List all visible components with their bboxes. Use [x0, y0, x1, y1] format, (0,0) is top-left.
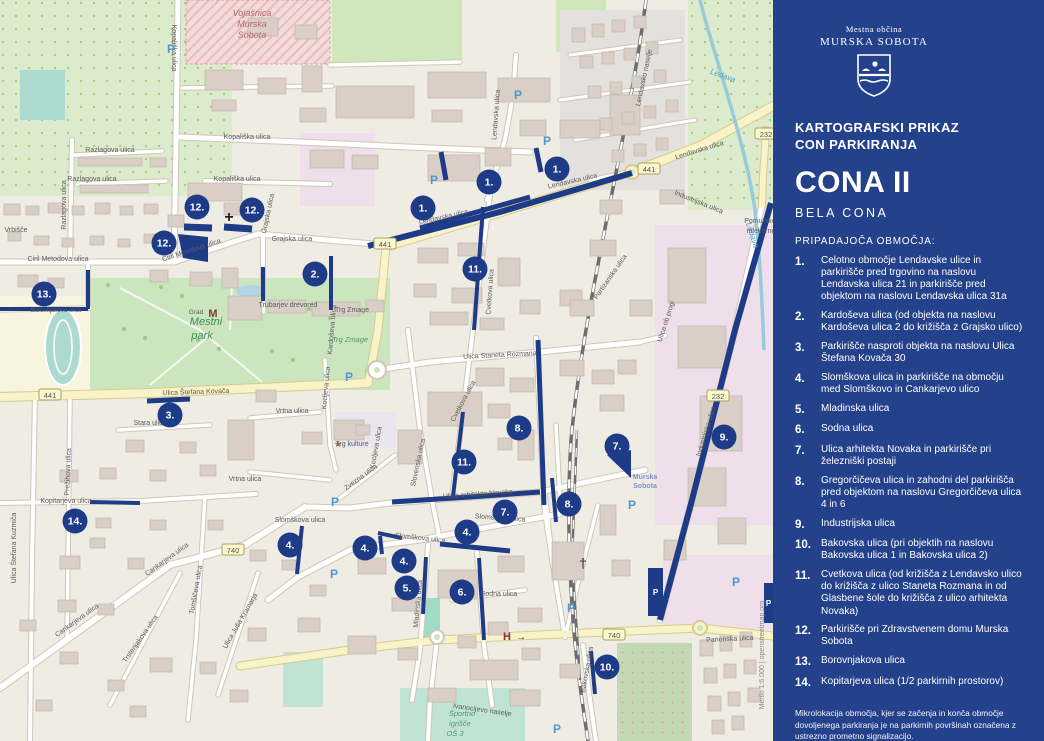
street-label: Slomškova ulica: [275, 517, 326, 524]
zone-marker-12: 12.: [185, 195, 210, 220]
svg-text:13.: 13.: [37, 289, 52, 301]
street-label: Razlagova ulica: [61, 180, 68, 230]
road-badge: 232: [707, 390, 729, 401]
area-list: 1.Celotno območje Lendavske ulice in par…: [795, 255, 1026, 696]
street-label: Kopitarjeva ulica: [40, 498, 91, 505]
zone-parkirisce-p: P: [648, 568, 663, 616]
parking-icon: P: [167, 42, 175, 56]
svg-text:14.: 14.: [68, 516, 83, 528]
svg-text:441: 441: [44, 391, 57, 400]
zone-marker-7: 7.: [605, 434, 630, 459]
zone-marker-11: 11.: [463, 257, 488, 282]
area-number: 7.: [795, 444, 816, 468]
street-label: Trg Zmage: [332, 335, 368, 344]
svg-text:1.: 1.: [485, 177, 494, 189]
zone-line-zdravstveni-a: [184, 227, 212, 228]
street-label: Mestni: [190, 316, 223, 328]
area-list-item: 12.Parkirišče pri Zdravstvenem domu Murs…: [795, 624, 1026, 648]
area-text: Cvetkova ulica (od križišča z Lendavsko …: [821, 569, 1026, 618]
zone-marker-14: 14.: [63, 509, 88, 534]
street-label: Vojašnica: [233, 8, 272, 18]
area-text: Kardoševa ulica (od objekta na naslovu K…: [821, 310, 1026, 334]
map-attribution: Merilo 1:6.000 | openstreetmap.org: [759, 600, 766, 709]
zone-marker-12: 12.: [240, 198, 265, 223]
street-label: Razlagova ulica: [85, 147, 135, 154]
svg-text:7.: 7.: [501, 507, 510, 519]
svg-text:6.: 6.: [458, 587, 467, 599]
area-list-heading: PRIPADAJOČA OBMOČJA:: [795, 236, 1026, 247]
svg-text:4.: 4.: [286, 540, 295, 552]
road-badge: 441: [638, 163, 660, 174]
area-list-item: 14.Kopitarjeva ulica (1/2 parkirnih pros…: [795, 676, 1026, 690]
area-text: Bakovska ulica (pri objektih na naslovu …: [821, 538, 1026, 562]
zone-marker-6: 6.: [450, 580, 475, 605]
area-list-item: 5.Mladinska ulica: [795, 403, 1026, 417]
zone-marker-4: 4.: [392, 549, 417, 574]
svg-text:441: 441: [643, 165, 656, 174]
street-label: mlekarne: [747, 228, 773, 235]
svg-text:11.: 11.: [468, 264, 482, 276]
area-list-item: 10.Bakovska ulica (pri objektih na naslo…: [795, 538, 1026, 562]
svg-text:4.: 4.: [463, 527, 472, 539]
svg-text:1.: 1.: [419, 203, 428, 215]
svg-text:232: 232: [712, 392, 725, 401]
area-number: 14.: [795, 676, 816, 690]
street-label: OŠ 3: [446, 729, 464, 738]
area-list-item: 4.Slomškova ulica in parkirišče na območ…: [795, 372, 1026, 396]
zone-marker-4: 4.: [278, 533, 303, 558]
svg-text:8.: 8.: [515, 423, 524, 435]
sheet-heading-line2: CON PARKIRANJA: [795, 137, 917, 152]
svg-text:4.: 4.: [400, 556, 409, 568]
parking-icon: P: [567, 601, 575, 615]
area-list-item: 3.Parkirišče nasproti objekta na naslovu…: [795, 341, 1026, 365]
arrow-icon: →: [516, 632, 526, 643]
zone-marker-8: 8.: [507, 416, 532, 441]
road-badge: 232: [755, 128, 773, 139]
star-icon: ★: [334, 439, 342, 449]
area-number: 5.: [795, 403, 816, 417]
area-list-item: 11.Cvetkova ulica (od križišča z Lendavs…: [795, 569, 1026, 618]
svg-text:8.: 8.: [565, 499, 574, 511]
zone-marker-3: 3.: [158, 403, 183, 428]
svg-text:4.: 4.: [361, 543, 370, 555]
parking-icon: P: [628, 498, 636, 512]
zone-marker-1: 1.: [477, 170, 502, 195]
zone-line-stefana-kovaca: [147, 399, 190, 401]
street-label: Športno: [449, 709, 475, 718]
area-number: 10.: [795, 538, 816, 562]
svg-text:9.: 9.: [720, 432, 729, 444]
parking-icon: P: [553, 722, 561, 736]
svg-text:740: 740: [227, 546, 240, 555]
svg-text:7.: 7.: [613, 441, 622, 453]
svg-text:3.: 3.: [166, 410, 175, 422]
castle-icon: M: [208, 308, 217, 320]
parking-icon: P: [732, 575, 740, 589]
area-number: 13.: [795, 655, 816, 669]
coat-of-arms-icon: [856, 53, 892, 97]
zone-line-kopitarjeva: [90, 502, 140, 503]
area-number: 4.: [795, 372, 816, 396]
svg-text:232: 232: [760, 130, 773, 139]
parking-icon: P: [330, 567, 338, 581]
road-badge: 441: [39, 389, 61, 400]
svg-text:P: P: [653, 588, 659, 597]
road-badge: 441: [374, 238, 396, 249]
sheet-heading-line1: KARTOGRAFSKI PRIKAZ: [795, 120, 959, 135]
svg-text:11.: 11.: [457, 457, 471, 469]
street-label: Murska: [633, 474, 658, 481]
sidebar: Mestna občina MURSKA SOBOTA KARTOGRAFSKI…: [773, 0, 1044, 741]
area-list-item: 1.Celotno območje Lendavske ulice in par…: [795, 255, 1026, 304]
svg-text:441: 441: [379, 240, 392, 249]
zone-marker-12: 12.: [152, 231, 177, 256]
zone-marker-11: 11.: [452, 450, 477, 475]
road-badge: 740: [603, 629, 625, 640]
zone-marker-2: 2.: [303, 262, 328, 287]
road-badge: 740: [222, 544, 244, 555]
area-list-item: 2.Kardoševa ulica (od objekta na naslovu…: [795, 310, 1026, 334]
zone-marker-9: 9.: [712, 425, 737, 450]
street-label: Trg Zmage: [335, 307, 369, 314]
footnote: Mikrolokacija območja, kjer se začenja i…: [795, 696, 1026, 741]
parking-zone-sheet: P PVojašnicaMurskaSobotaKopališka ulicaK…: [0, 0, 1044, 741]
area-number: 11.: [795, 569, 816, 618]
area-number: 3.: [795, 341, 816, 365]
street-label: Razlagova ulica: [67, 176, 117, 183]
svg-text:P: P: [766, 599, 772, 608]
area-list-item: 9.Industrijska ulica: [795, 518, 1026, 532]
street-label: Vrbišče: [4, 227, 27, 234]
map-canvas: P PVojašnicaMurskaSobotaKopališka ulicaK…: [0, 0, 773, 741]
area-text: Sodna ulica: [821, 423, 873, 437]
area-text: Borovnjakova ulica: [821, 655, 905, 669]
street-label: Pomurske: [744, 218, 773, 225]
svg-text:12.: 12.: [190, 202, 205, 214]
sheet-heading: KARTOGRAFSKI PRIKAZ CON PARKIRANJA: [795, 120, 1026, 154]
area-text: Industrijska ulica: [821, 518, 895, 532]
church-cross-icon: †: [579, 555, 587, 571]
zone-subtitle: BELA CONA: [795, 206, 1026, 220]
street-label: Grad: [189, 309, 204, 316]
area-text: Parkirišče pri Zdravstvenem domu Murska …: [821, 624, 1026, 648]
parking-icon: P: [543, 134, 551, 148]
area-list-item: 6.Sodna ulica: [795, 423, 1026, 437]
area-number: 9.: [795, 518, 816, 532]
zone-marker-4: 4.: [455, 520, 480, 545]
street-label: Grajska ulica: [272, 236, 313, 243]
zone-marker-5: 5.: [395, 576, 420, 601]
svg-text:10.: 10.: [600, 662, 615, 674]
street-label: Borovnjakova ulica: [31, 308, 82, 314]
parking-icon: P: [430, 173, 438, 187]
street-label: Vrtna ulica: [276, 408, 309, 415]
area-list-item: 8.Gregorčičeva ulica in zahodni del park…: [795, 475, 1026, 512]
zone-marker-13: 13.: [32, 282, 57, 307]
street-label: Sobota: [633, 483, 657, 490]
area-list-item: 7.Ulica arhitekta Novaka in parkirišče p…: [795, 444, 1026, 468]
zone-marker-1: 1.: [411, 196, 436, 221]
parking-icon: P: [514, 88, 522, 102]
area-text: Slomškova ulica in parkirišče na območju…: [821, 372, 1026, 396]
street-label: Sobota: [238, 30, 267, 40]
zone-marker-7: 7.: [493, 500, 518, 525]
parking-icon: P: [331, 495, 339, 509]
area-text: Mladinska ulica: [821, 403, 889, 417]
area-number: 2.: [795, 310, 816, 334]
zone-marker-10: 10.: [595, 655, 620, 680]
zone-marker-4: 4.: [353, 536, 378, 561]
street-label: Kopališka ulica: [214, 176, 261, 183]
city-map: P PVojašnicaMurskaSobotaKopališka ulicaK…: [0, 0, 773, 741]
street-label: igrišče: [449, 719, 471, 728]
municipality-logo: Mestna občina MURSKA SOBOTA: [809, 24, 939, 102]
area-number: 6.: [795, 423, 816, 437]
svg-text:12.: 12.: [157, 238, 172, 250]
street-label: Kopališka ulica: [224, 134, 271, 141]
svg-text:740: 740: [608, 631, 621, 640]
area-text: Parkirišče nasproti objekta na naslovu U…: [821, 341, 1026, 365]
zone-line-slomskova-krak: [380, 536, 382, 554]
zone-marker-1: 1.: [545, 157, 570, 182]
street-label: Trubarjev drevored: [259, 302, 318, 309]
area-text: Ulica arhitekta Novaka in parkirišče pri…: [821, 444, 1026, 468]
health-cross-icon: +: [224, 209, 233, 226]
parking-icon: P: [345, 370, 353, 384]
municipality-name-small: Mestna občina: [809, 24, 939, 34]
area-text: Gregorčičeva ulica in zahodni del parkir…: [821, 475, 1026, 512]
zone-line-zdravstveni-b: [224, 227, 252, 229]
svg-text:5.: 5.: [403, 583, 412, 595]
street-label: Ciril Metodova ulica: [27, 256, 88, 263]
area-number: 8.: [795, 475, 816, 512]
area-list-item: 13.Borovnjakova ulica: [795, 655, 1026, 669]
zone-marker-8: 8.: [557, 492, 582, 517]
hospital-icon: H: [503, 631, 511, 643]
street-label: park: [190, 330, 213, 342]
street-label: Vrtna ulica: [229, 476, 262, 483]
zone-title: CONA II: [795, 166, 1026, 200]
area-number: 1.: [795, 255, 816, 304]
municipality-name: MURSKA SOBOTA: [809, 36, 939, 48]
svg-text:12.: 12.: [245, 205, 260, 217]
svg-text:1.: 1.: [553, 164, 562, 176]
svg-text:2.: 2.: [311, 269, 320, 281]
area-text: Celotno območje Lendavske ulice in parki…: [821, 255, 1026, 304]
street-label: Murska: [237, 19, 267, 29]
area-text: Kopitarjeva ulica (1/2 parkirnih prostor…: [821, 676, 1003, 690]
street-label: Sodna ulica: [481, 591, 518, 598]
area-number: 12.: [795, 624, 816, 648]
street-label: Ulica Štefana Kuzmiča: [9, 513, 18, 584]
